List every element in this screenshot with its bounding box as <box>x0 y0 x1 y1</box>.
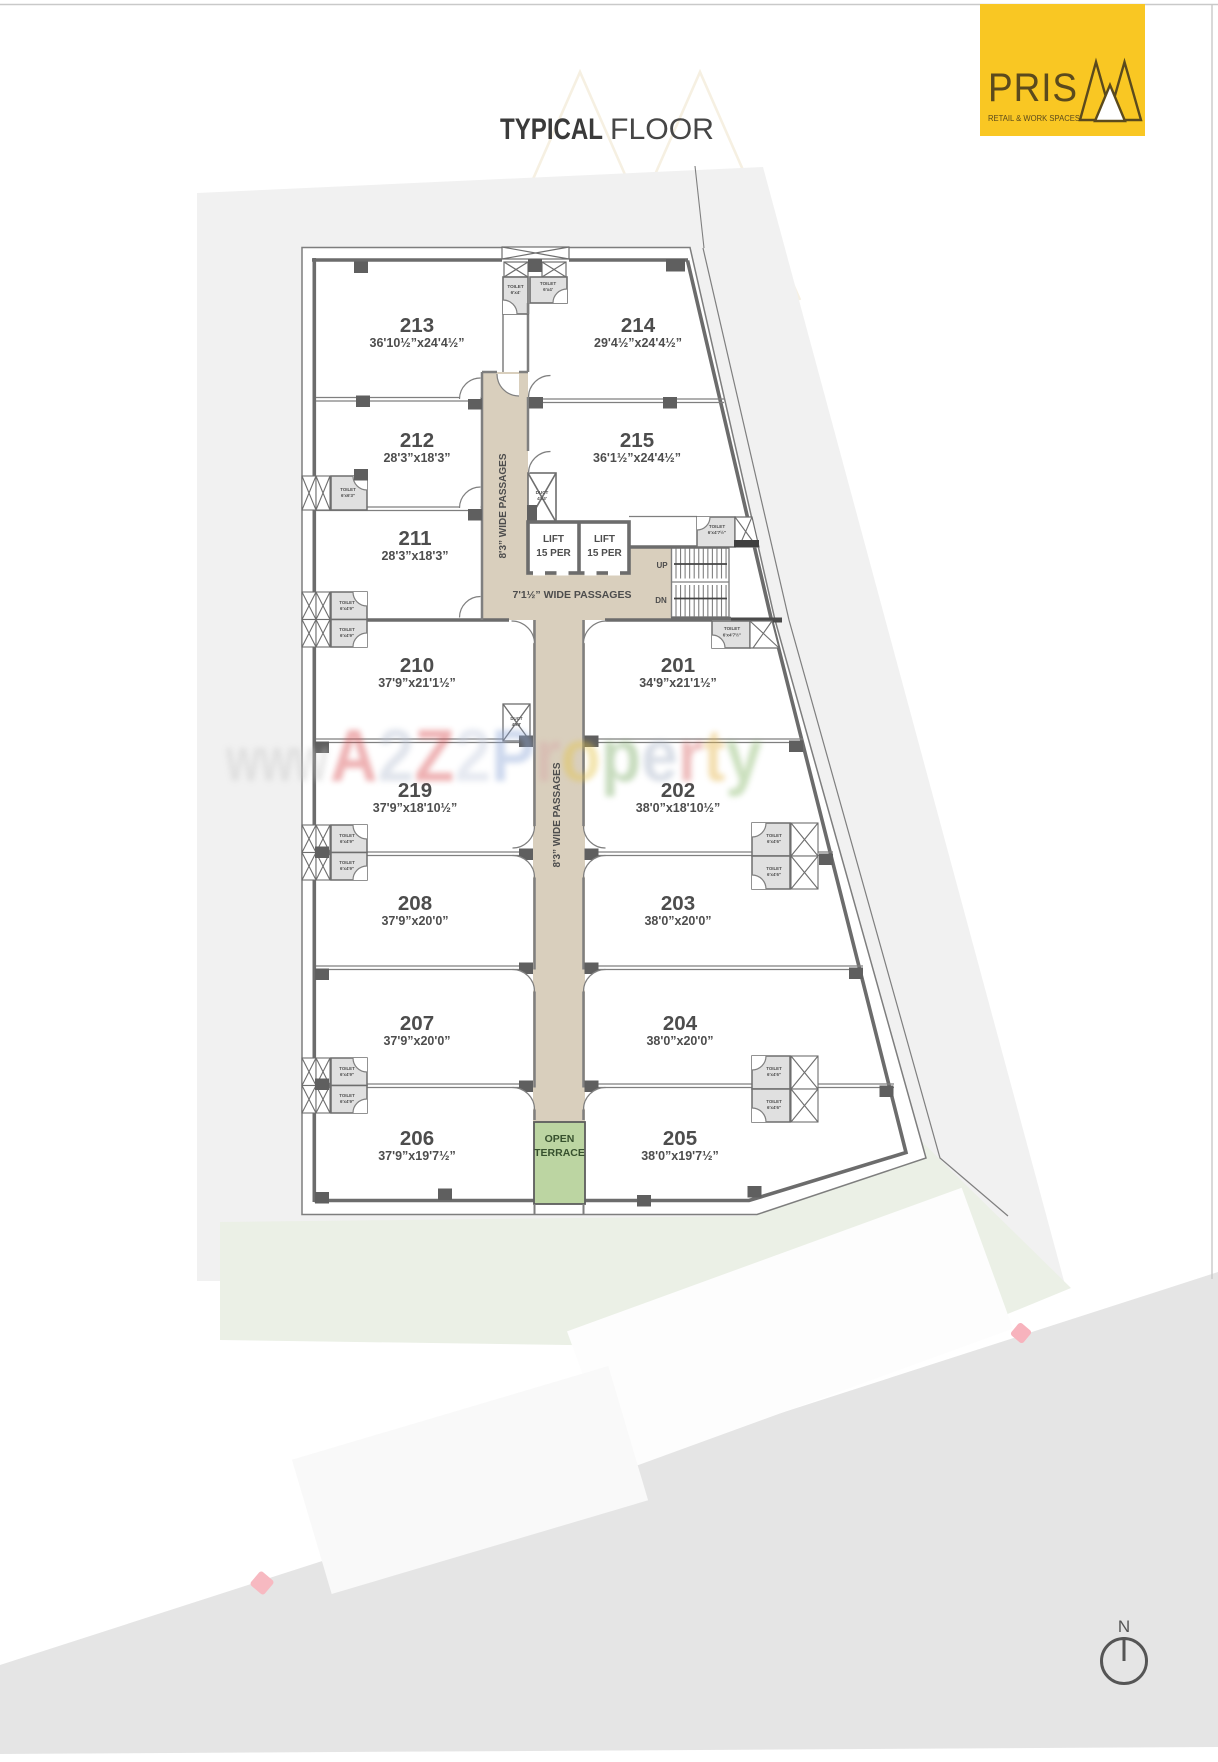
svg-text:6'x4'6": 6'x4'6" <box>767 839 781 844</box>
svg-text:TOILET: TOILET <box>766 1066 782 1071</box>
svg-text:203: 203 <box>661 892 695 915</box>
svg-text:FLOOR: FLOOR <box>610 113 714 146</box>
svg-text:TOILET: TOILET <box>339 833 355 838</box>
svg-text:TOILET: TOILET <box>766 833 782 838</box>
svg-text:201: 201 <box>661 654 695 677</box>
svg-text:37'9”x21'1½”: 37'9”x21'1½” <box>378 676 456 690</box>
svg-text:4'x3': 4'x3' <box>537 496 547 501</box>
svg-text:LIFT: LIFT <box>594 534 615 545</box>
svg-text:LIFT: LIFT <box>543 534 564 545</box>
svg-text:TERRACE: TERRACE <box>534 1147 585 1159</box>
svg-text:29'4½”x24'4½”: 29'4½”x24'4½” <box>594 336 682 350</box>
svg-text:206: 206 <box>400 1127 434 1150</box>
svg-text:8'3” WIDE PASSAGES: 8'3” WIDE PASSAGES <box>498 453 509 558</box>
svg-text:6'x4'6": 6'x4'6" <box>767 872 781 877</box>
svg-text:UP: UP <box>656 561 668 570</box>
svg-text:208: 208 <box>398 892 432 915</box>
svg-text:38'0”x20'0”: 38'0”x20'0” <box>644 914 711 928</box>
svg-text:28'3”x18'3”: 28'3”x18'3” <box>383 451 450 465</box>
svg-text:www: www <box>225 726 328 795</box>
svg-text:6'x4'7½": 6'x4'7½" <box>723 632 741 638</box>
svg-text:6'x4'9": 6'x4'9" <box>340 1072 354 1077</box>
svg-text:TOILET: TOILET <box>339 1066 355 1071</box>
svg-text:28'3”x18'3”: 28'3”x18'3” <box>381 549 448 563</box>
svg-text:TOILET: TOILET <box>507 284 523 289</box>
svg-text:37'9”x20'0”: 37'9”x20'0” <box>383 1034 450 1048</box>
svg-text:6'x6'3": 6'x6'3" <box>341 493 355 498</box>
svg-text:TOILET: TOILET <box>339 600 355 605</box>
svg-text:6'x4'9": 6'x4'9" <box>340 866 354 871</box>
svg-text:6'x4'9": 6'x4'9" <box>340 606 354 611</box>
svg-text:204: 204 <box>663 1012 698 1035</box>
svg-text:DUCT: DUCT <box>536 490 549 495</box>
svg-text:PRIS: PRIS <box>988 66 1078 110</box>
svg-text:37'9”x19'7½”: 37'9”x19'7½” <box>378 1149 456 1163</box>
svg-text:15 PER: 15 PER <box>536 548 571 559</box>
svg-text:38'0”x18'10½”: 38'0”x18'10½” <box>636 801 721 815</box>
svg-text:213: 213 <box>400 314 434 337</box>
svg-text:OPEN: OPEN <box>545 1133 575 1145</box>
svg-text:38'0”x19'7½”: 38'0”x19'7½” <box>641 1149 719 1163</box>
svg-text:38'0”x20'0”: 38'0”x20'0” <box>646 1034 713 1048</box>
svg-text:7'1½” WIDE PASSAGES: 7'1½” WIDE PASSAGES <box>512 589 631 601</box>
svg-text:6'x4'9": 6'x4'9" <box>340 839 354 844</box>
svg-text:205: 205 <box>663 1127 697 1150</box>
svg-text:36'1½”x24'4½”: 36'1½”x24'4½” <box>593 451 681 465</box>
svg-text:212: 212 <box>400 429 434 452</box>
svg-text:TOILET: TOILET <box>339 627 355 632</box>
svg-text:215: 215 <box>620 429 654 452</box>
svg-text:37'9”x20'0”: 37'9”x20'0” <box>381 914 448 928</box>
svg-text:RETAIL & WORK SPACES: RETAIL & WORK SPACES <box>988 113 1080 123</box>
svg-text:207: 207 <box>400 1012 434 1035</box>
svg-text:TOILET: TOILET <box>340 487 356 492</box>
svg-text:6'x4'6": 6'x4'6" <box>767 1105 781 1110</box>
svg-text:TOILET: TOILET <box>540 281 556 286</box>
svg-text:37'9”x18'10½”: 37'9”x18'10½” <box>373 801 458 815</box>
svg-text:6'x4'9": 6'x4'9" <box>340 1099 354 1104</box>
svg-text:34'9”x21'1½”: 34'9”x21'1½” <box>639 676 717 690</box>
svg-text:TOILET: TOILET <box>724 626 740 631</box>
svg-text:TOILET: TOILET <box>709 524 725 529</box>
svg-text:N: N <box>1118 1617 1130 1636</box>
svg-text:211: 211 <box>398 527 431 550</box>
svg-text:TOILET: TOILET <box>339 1093 355 1098</box>
svg-text:6'x4'7½": 6'x4'7½" <box>708 529 726 535</box>
svg-text:TOILET: TOILET <box>339 860 355 865</box>
svg-text:36'10½”x24'4½”: 36'10½”x24'4½” <box>370 336 465 350</box>
svg-text:210: 210 <box>400 654 434 677</box>
svg-text:214: 214 <box>621 314 656 337</box>
svg-text:TYPICAL: TYPICAL <box>500 113 603 146</box>
svg-text:DN: DN <box>655 596 667 605</box>
svg-text:TOILET: TOILET <box>766 866 782 871</box>
svg-text:6'x4': 6'x4' <box>543 287 553 292</box>
svg-text:6'x4': 6'x4' <box>511 290 521 295</box>
svg-text:TOILET: TOILET <box>766 1099 782 1104</box>
svg-text:15 PER: 15 PER <box>587 548 622 559</box>
svg-text:6'x4'6": 6'x4'6" <box>767 1072 781 1077</box>
svg-text:A2Z2Property: A2Z2Property <box>330 714 762 797</box>
svg-text:6'x4'9": 6'x4'9" <box>340 633 354 638</box>
